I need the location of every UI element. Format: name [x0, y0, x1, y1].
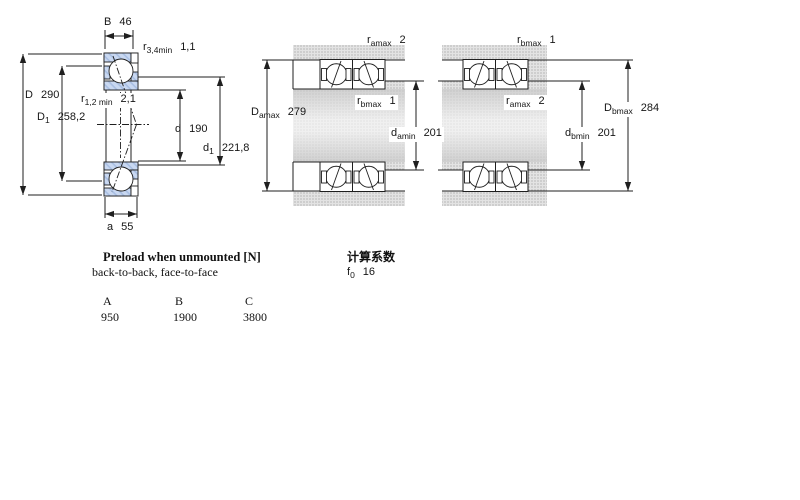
preload-col-a-header: A	[103, 295, 112, 308]
housing-shoulder-top	[528, 60, 547, 89]
preload-col-c-header: C	[245, 295, 253, 308]
dim-label-a: a55	[107, 221, 133, 236]
preload-value-a: 950	[101, 311, 119, 324]
dim-lines-a	[105, 197, 137, 218]
housing-band-bottom	[293, 191, 405, 206]
preload-title: Preload when unmounted [N]	[103, 251, 261, 264]
preload-value-c: 3800	[243, 311, 267, 324]
shaft-shoulder-top	[385, 81, 405, 89]
middle-bearing-pair-bottom	[320, 162, 385, 192]
housing-band-bottom	[442, 191, 547, 206]
housing-shoulder-bottom	[528, 162, 547, 191]
dim-label-Damax: Damax279	[251, 106, 306, 121]
dim-label-rbmax-right: rbmax1	[517, 34, 556, 49]
bearing-datasheet-page: B46 r3,4min1,1 D290 D1258,2 r1,2 min2,1 …	[0, 0, 800, 500]
shaft-shoulder-top	[442, 81, 463, 89]
dim-label-Dbmax: Dbmax284	[602, 102, 661, 117]
left-bearing-bottom-section	[104, 162, 138, 196]
preload-subtitle: back-to-back, face-to-face	[92, 266, 218, 279]
dim-label-damin: damin201	[389, 127, 444, 142]
dim-label-d: d190	[175, 123, 207, 138]
right-bearing-pair-top	[463, 60, 528, 90]
dim-label-d1: d1221,8	[203, 142, 249, 157]
shaft-shoulder-bottom	[385, 162, 405, 170]
calc-factor-title: 计算系数	[347, 251, 395, 264]
middle-diagram	[262, 45, 424, 206]
preload-col-b-header: B	[175, 295, 183, 308]
calc-factor-f0: f016	[347, 266, 375, 281]
dim-label-ramax-right: ramax2	[504, 95, 547, 110]
left-bearing-top-section	[104, 53, 138, 90]
dim-label-D: D290	[25, 89, 59, 104]
dim-label-dbmin: dbmin201	[563, 127, 618, 142]
right-bearing-pair-bottom	[463, 162, 528, 192]
dim-lines-B	[105, 30, 133, 49]
dim-label-ramax-middle: ramax2	[367, 34, 406, 49]
preload-value-b: 1900	[173, 311, 197, 324]
dim-label-D1: D1258,2	[37, 111, 85, 126]
right-diagram	[438, 45, 633, 206]
middle-bearing-pair-top	[320, 60, 385, 90]
dim-label-r12min: r1,2 min2,1	[79, 93, 138, 108]
dim-label-rbmax-middle: rbmax1	[355, 95, 398, 110]
dim-label-r34min: r3,4min1,1	[143, 41, 195, 56]
dim-label-B: B46	[104, 16, 132, 31]
shaft-shoulder-bottom	[442, 162, 463, 170]
